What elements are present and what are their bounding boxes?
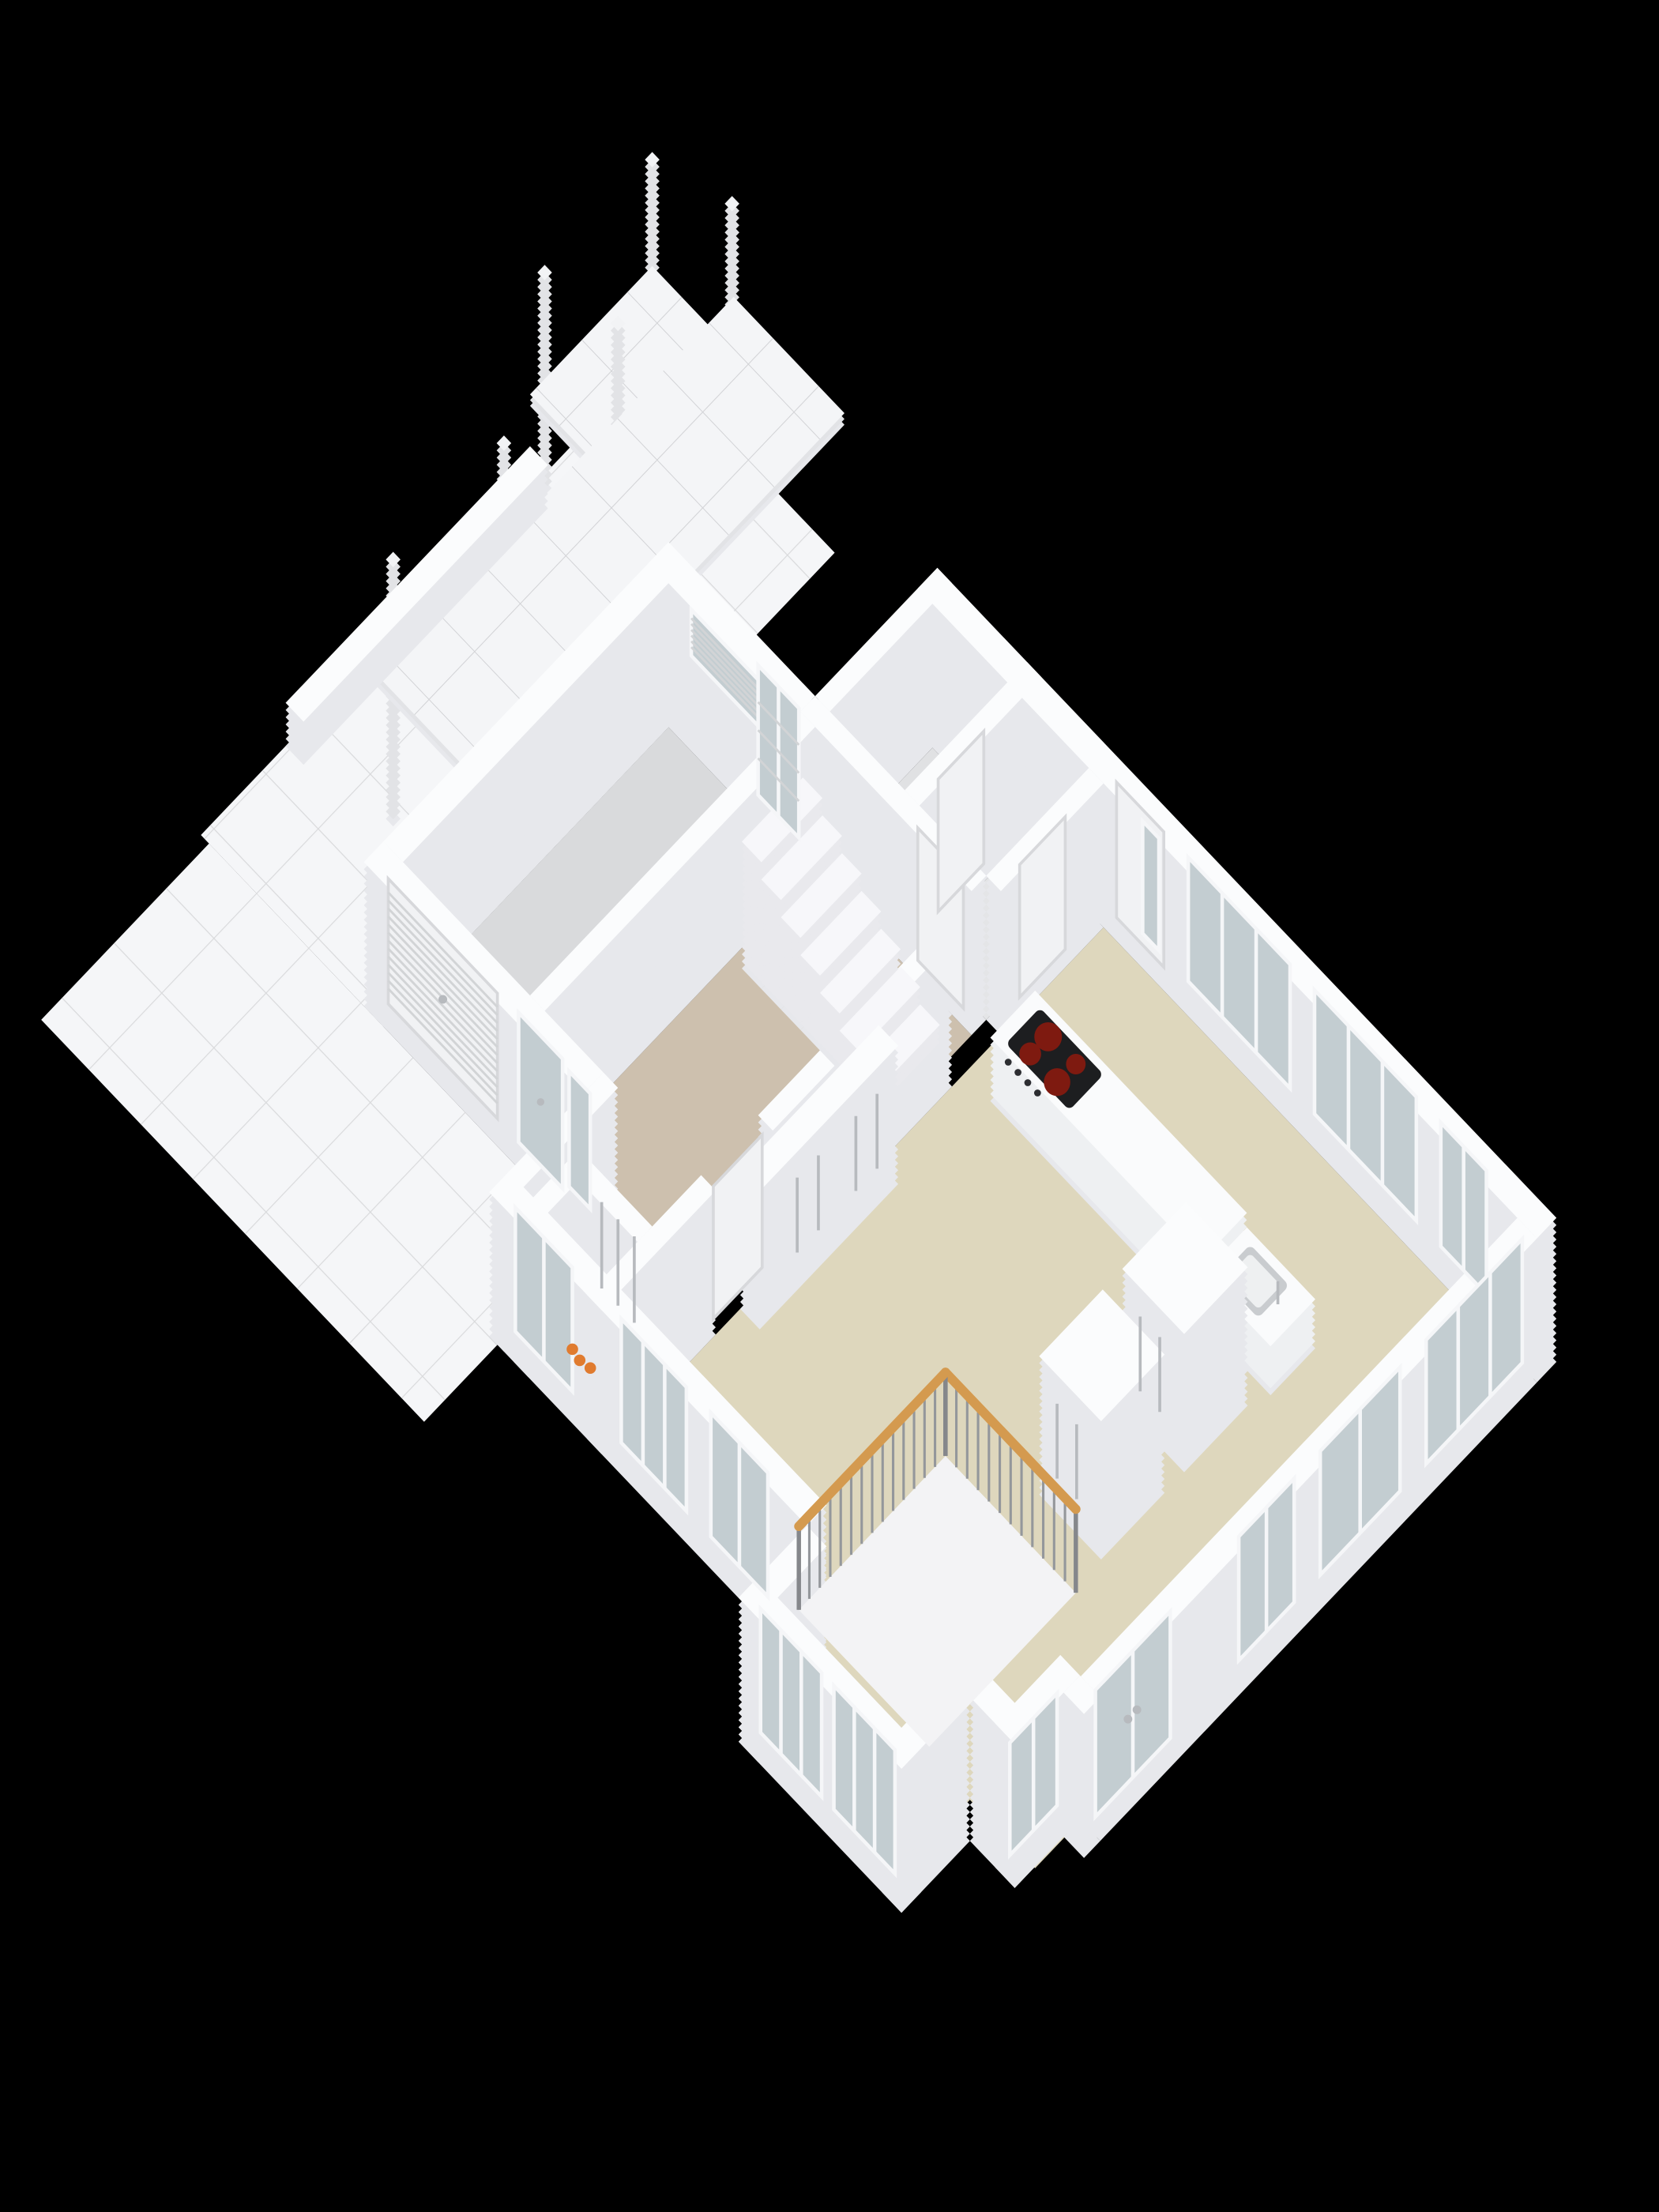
side-door-handle <box>537 1098 544 1105</box>
french-door-handle <box>1123 1715 1132 1724</box>
cooktop-knob <box>1034 1089 1041 1097</box>
isometric-floorplan <box>0 0 1659 2212</box>
floorplan-render-canvas <box>0 0 1659 2212</box>
side-sidelight <box>569 1071 590 1209</box>
cooktop-knob <box>1005 1059 1012 1066</box>
cooktop-knob <box>1025 1079 1032 1086</box>
tech-orange-item <box>574 1355 586 1367</box>
tech-orange-item <box>566 1344 578 1356</box>
tech-orange-item <box>585 1362 596 1374</box>
french-door-handle <box>1133 1706 1142 1714</box>
cooktop-knob <box>1014 1069 1021 1076</box>
front-door-glass <box>1142 821 1159 950</box>
roller-door-handle <box>438 995 447 1003</box>
